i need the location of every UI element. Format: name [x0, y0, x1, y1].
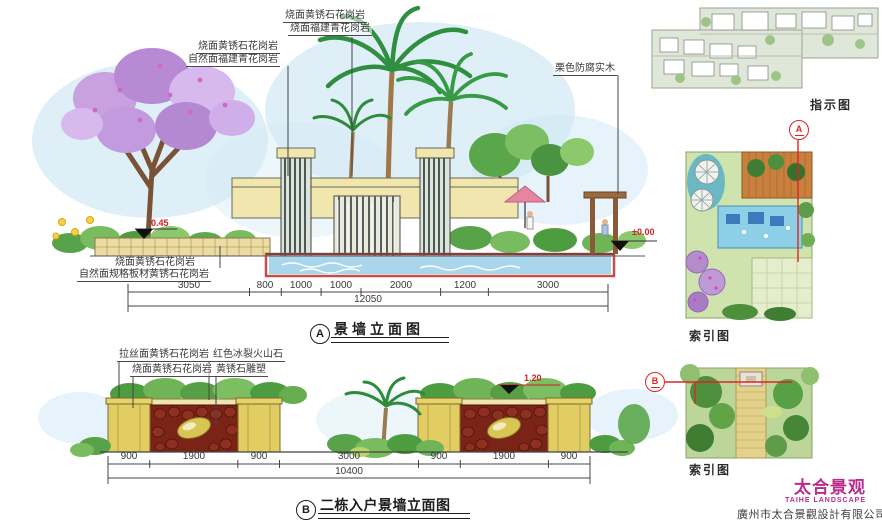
company-name: 廣州市太合景觀設計有限公司: [737, 506, 882, 522]
dim-b-6: 1900: [493, 451, 515, 462]
annotation-a-top2-line1: 烧面黄锈石花岗岩: [196, 41, 280, 54]
elevation-a-art: [32, 8, 657, 276]
master-plan-label: 指示图: [810, 96, 852, 113]
title-b-ref-letter: B: [302, 504, 310, 516]
annotation-b-1: 拉丝面黄锈石花岗岩: [117, 349, 211, 362]
dim-a-total: 12050: [354, 294, 382, 305]
index-map-1-art: [686, 152, 815, 321]
section-marker-a: A: [789, 120, 809, 140]
index-map-1-label: 索引图: [689, 327, 731, 344]
dim-a-2: 800: [257, 280, 274, 291]
annotation-a-top1-line1: 烧面黄锈石花岗岩: [283, 10, 367, 23]
elevation-value-a-left: 0.45: [151, 218, 169, 228]
index-map-2-art: [680, 364, 819, 458]
master-plan-art: [652, 8, 878, 88]
elevation-value-b: 1.20: [524, 373, 542, 383]
dim-a-7: 3000: [537, 280, 559, 291]
drawing-b-title: 二栋入户景墙立面图: [320, 495, 451, 515]
dim-b-total: 10400: [335, 466, 363, 477]
dim-a-4: 1000: [330, 280, 352, 291]
logo-en-text: TAIHE LANDSCAPE: [758, 497, 866, 505]
dim-b-7: 900: [561, 451, 578, 462]
title-a-reference-circle: A: [310, 324, 330, 344]
dim-b-2: 1900: [183, 451, 205, 462]
annotation-b-4: 黄锈石雕塑: [214, 364, 268, 377]
dim-a-5: 2000: [390, 280, 412, 291]
dim-a-6: 1200: [454, 280, 476, 291]
dim-b-3: 900: [251, 451, 268, 462]
annotation-b-3: 红色冰裂火山石: [211, 349, 285, 362]
dim-b-5: 900: [431, 451, 448, 462]
marker-a-line: [795, 135, 804, 136]
index-map-2-label: 索引图: [689, 461, 731, 478]
paving: [95, 238, 270, 256]
section-marker-a-letter: A: [796, 124, 803, 134]
water-basin: [266, 254, 614, 276]
title-a-ref-letter: A: [316, 328, 324, 340]
section-marker-b: B: [645, 372, 665, 392]
annotation-a-top2-line2: 自然面福建青花岗岩: [186, 54, 280, 67]
drawing-a-title: 景墙立面图: [334, 319, 424, 339]
dim-b-4: 3000: [338, 451, 360, 462]
annotation-a-wood: 栗色防腐实木: [553, 63, 617, 76]
section-marker-b-letter: B: [652, 376, 659, 386]
dim-b-1: 900: [121, 451, 138, 462]
annotation-a-top1-line2: 烧面福建青花岗岩: [288, 23, 372, 36]
dim-a-1: 3050: [178, 280, 200, 291]
elevation-value-a-right: ±0.00: [632, 227, 654, 237]
title-b-underline: [318, 513, 470, 519]
company-logo: 太合景观 TAIHE LANDSCAPE: [758, 479, 866, 505]
title-a-underline: [331, 337, 449, 343]
entry-wall-unit-1: [106, 378, 307, 452]
marker-b-line: [651, 387, 660, 388]
drawing-sheet: 烧面黄锈石花岗岩 烧面福建青花岗岩 烧面黄锈石花岗岩 自然面福建青花岗岩 栗色防…: [0, 0, 882, 526]
logo-cn-text: 太合景观: [758, 479, 866, 497]
dim-a-3: 1000: [290, 280, 312, 291]
title-b-reference-circle: B: [296, 500, 316, 520]
elevation-b-art: [38, 378, 678, 458]
annotation-b-2: 烧面黄锈石花岗岩: [130, 364, 214, 377]
